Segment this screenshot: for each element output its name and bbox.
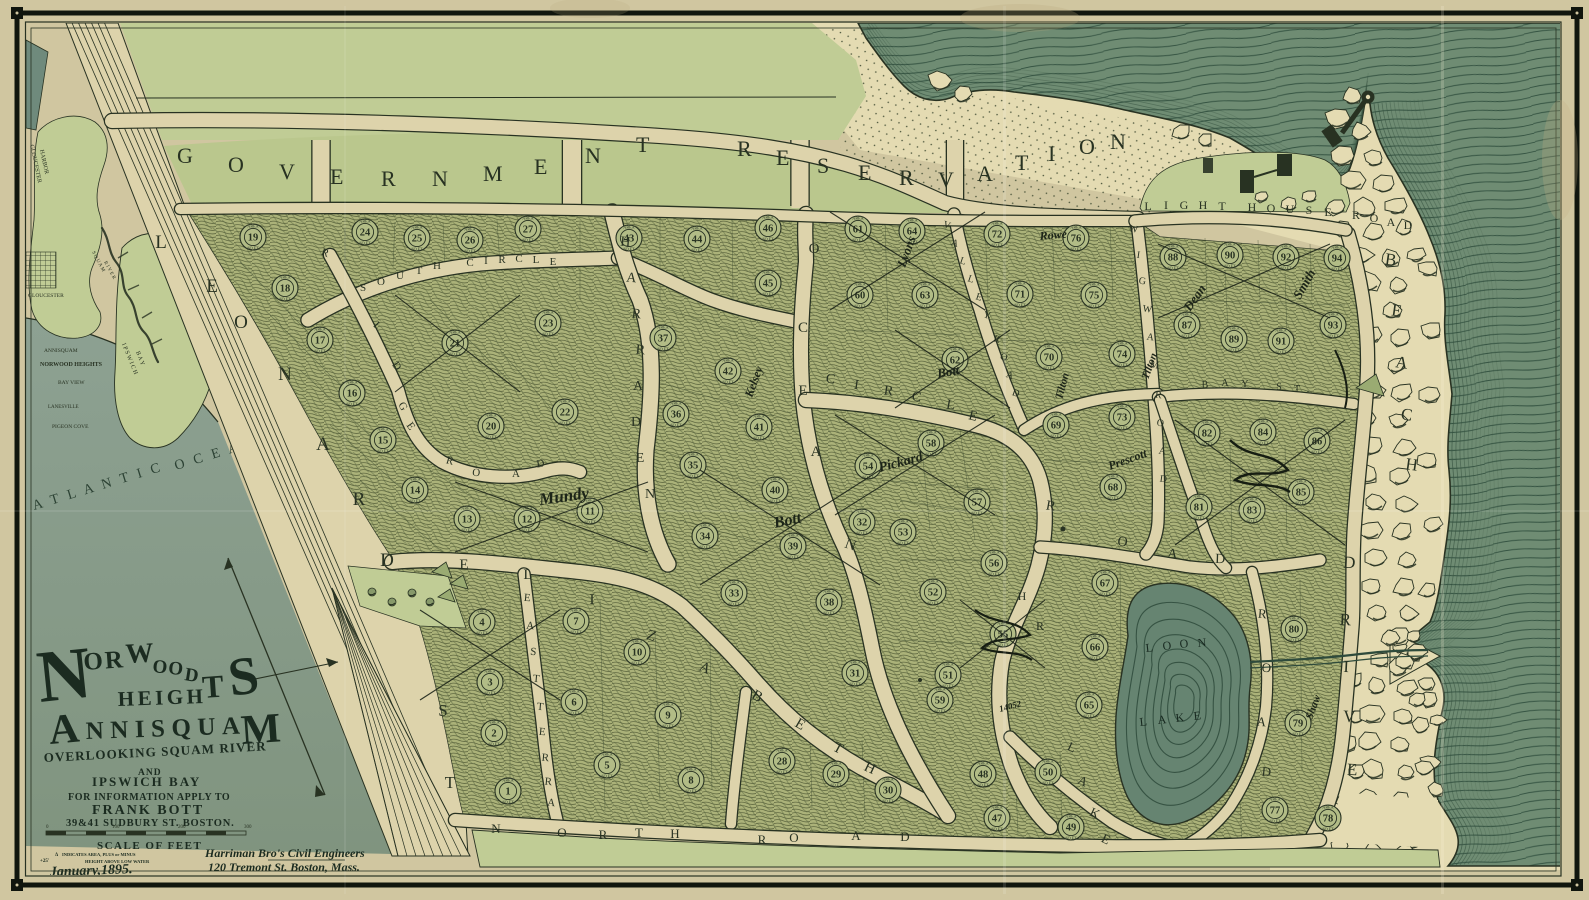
svg-text:SQ.FT: SQ.FT <box>977 783 989 788</box>
svg-text:80: 80 <box>1289 625 1300 636</box>
svg-text:SQ.FT: SQ.FT <box>1167 266 1179 271</box>
svg-text:AREA: AREA <box>601 752 612 757</box>
svg-text:AREA: AREA <box>762 215 773 220</box>
svg-text:SQ.FT: SQ.FT <box>687 474 699 479</box>
svg-text:AREA: AREA <box>542 310 553 315</box>
svg-text:SQ.FT: SQ.FT <box>411 247 423 252</box>
svg-text:T: T <box>1015 150 1029 175</box>
svg-text:AREA: AREA <box>314 327 325 332</box>
svg-text:82: 82 <box>1202 429 1213 440</box>
svg-text:O: O <box>1156 418 1165 430</box>
svg-text:49: 49 <box>1066 823 1077 834</box>
svg-text:AREA: AREA <box>662 702 673 707</box>
svg-text:AREA: AREA <box>1193 494 1204 499</box>
svg-text:N: N <box>432 166 448 191</box>
svg-text:SQ.FT: SQ.FT <box>570 630 582 635</box>
svg-text:AREA: AREA <box>906 218 917 223</box>
svg-text:SQ.FT: SQ.FT <box>1228 348 1240 353</box>
svg-text:SQ.FT: SQ.FT <box>988 572 1000 577</box>
svg-text:AREA: AREA <box>823 589 834 594</box>
svg-text:Rowe: Rowe <box>1038 227 1068 243</box>
svg-text:AREA: AREA <box>411 225 422 230</box>
svg-text:17: 17 <box>315 336 326 347</box>
svg-text:SQ.FT: SQ.FT <box>279 297 291 302</box>
svg-text:SQ.FT: SQ.FT <box>559 421 571 426</box>
svg-text:SQ.FT: SQ.FT <box>521 528 533 533</box>
svg-text:10: 10 <box>632 648 643 659</box>
svg-text:T: T <box>1294 384 1300 395</box>
svg-text:AREA: AREA <box>882 777 893 782</box>
svg-text:A: A <box>512 468 520 480</box>
svg-text:58: 58 <box>926 439 937 450</box>
svg-text:26: 26 <box>465 236 476 247</box>
svg-text:90: 90 <box>1225 251 1236 262</box>
svg-text:SQ.FT: SQ.FT <box>1295 501 1307 506</box>
svg-text:AREA: AREA <box>1331 245 1342 250</box>
svg-text:6: 6 <box>571 698 576 709</box>
svg-text:S: S <box>360 282 366 294</box>
svg-text:V: V <box>1343 707 1357 727</box>
svg-text:14: 14 <box>410 486 421 497</box>
svg-text:SQ.FT: SQ.FT <box>1327 334 1339 339</box>
svg-text:R: R <box>899 165 914 190</box>
svg-text:O: O <box>1162 638 1172 653</box>
svg-text:84: 84 <box>1258 428 1269 439</box>
svg-text:91: 91 <box>1276 337 1287 348</box>
svg-text:SQ.FT: SQ.FT <box>631 661 643 666</box>
svg-text:SQ.FT: SQ.FT <box>584 520 596 525</box>
svg-text:94: 94 <box>1332 254 1343 265</box>
svg-text:GLOUCESTER: GLOUCESTER <box>28 293 64 299</box>
svg-text:.: . <box>1307 384 1310 395</box>
svg-text:H: H <box>620 235 631 251</box>
svg-text:37: 37 <box>658 334 669 345</box>
svg-text:AREA: AREA <box>1224 242 1235 247</box>
svg-text:AREA: AREA <box>1088 282 1099 287</box>
svg-text:SQ.FT: SQ.FT <box>927 601 939 606</box>
svg-text:88: 88 <box>1168 253 1179 264</box>
svg-text:29: 29 <box>831 770 842 781</box>
svg-text:U: U <box>396 270 404 282</box>
svg-text:SQ.FT: SQ.FT <box>823 611 835 616</box>
svg-text:SQ.FT: SQ.FT <box>1043 366 1055 371</box>
svg-text:200: 200 <box>178 825 186 830</box>
svg-text:AREA: AREA <box>988 550 999 555</box>
svg-text:I: I <box>1048 141 1055 166</box>
svg-text:R: R <box>1339 610 1352 630</box>
svg-text:AREA: AREA <box>862 453 873 458</box>
svg-text:51: 51 <box>943 671 954 682</box>
svg-text:N: N <box>491 821 501 836</box>
svg-text:N: N <box>645 487 655 502</box>
svg-text:AREA: AREA <box>691 226 702 231</box>
svg-text:AREA: AREA <box>925 430 936 435</box>
svg-text:A: A <box>1221 378 1229 389</box>
svg-text:E: E <box>1347 760 1358 780</box>
svg-text:E: E <box>776 145 789 170</box>
svg-text:79: 79 <box>1293 719 1304 730</box>
svg-text:O: O <box>1370 211 1379 225</box>
svg-text:SQ.FT: SQ.FT <box>1099 592 1111 597</box>
svg-text:AREA: AREA <box>852 216 863 221</box>
svg-text:1: 1 <box>505 787 510 798</box>
svg-text:IPSWICH BAY: IPSWICH BAY <box>92 774 201 789</box>
svg-text:HEIGH: HEIGH <box>117 684 206 711</box>
svg-text:46: 46 <box>763 224 774 235</box>
svg-text:15: 15 <box>378 436 389 447</box>
svg-text:C: C <box>798 320 808 336</box>
svg-text:AREA: AREA <box>1269 797 1280 802</box>
svg-text:O: O <box>228 152 244 177</box>
svg-text:31: 31 <box>850 669 861 680</box>
svg-text:SQ.FT: SQ.FT <box>1089 656 1101 661</box>
svg-text:SQ.FT: SQ.FT <box>1246 519 1258 524</box>
svg-text:E: E <box>636 451 645 466</box>
svg-text:SQ.FT: SQ.FT <box>753 436 765 441</box>
svg-text:SQ.FT: SQ.FT <box>314 349 326 354</box>
svg-text:SQ.FT: SQ.FT <box>1331 267 1343 272</box>
svg-text:O: O <box>1267 201 1276 215</box>
svg-text:SQ.FT: SQ.FT <box>728 602 740 607</box>
svg-text:AREA: AREA <box>461 506 472 511</box>
svg-text:SQ.FT: SQ.FT <box>1193 516 1205 521</box>
svg-text:H: H <box>1248 200 1257 214</box>
svg-text:I: I <box>590 592 595 608</box>
svg-text:SCALE OF FEET: SCALE OF FEET <box>97 840 202 852</box>
svg-text:R: R <box>498 254 506 266</box>
svg-text:AREA: AREA <box>762 270 773 275</box>
svg-text:39&41 SUDBURY ST. BOSTON.: 39&41 SUDBURY ST. BOSTON. <box>66 818 235 829</box>
svg-text:SQ.FT: SQ.FT <box>882 799 894 804</box>
svg-text:SQ.FT: SQ.FT <box>699 545 711 550</box>
svg-text:AREA: AREA <box>1042 759 1053 764</box>
svg-text:AREA: AREA <box>568 689 579 694</box>
svg-text:SQ.FT: SQ.FT <box>1292 732 1304 737</box>
svg-text:SQ.FT: SQ.FT <box>461 528 473 533</box>
svg-text:300: 300 <box>244 825 252 830</box>
svg-text:65: 65 <box>1084 701 1095 712</box>
svg-text:AREA: AREA <box>830 761 841 766</box>
svg-text:SQ.FT: SQ.FT <box>776 770 788 775</box>
svg-text:AREA: AREA <box>685 767 696 772</box>
svg-text:E: E <box>206 276 218 297</box>
svg-text:59: 59 <box>935 696 946 707</box>
svg-text:AREA: AREA <box>559 399 570 404</box>
svg-text:63: 63 <box>920 291 931 302</box>
svg-text:AREA: AREA <box>359 219 370 224</box>
svg-text:AREA: AREA <box>776 748 787 753</box>
svg-text:54: 54 <box>863 462 874 473</box>
svg-text:AREA: AREA <box>1116 341 1127 346</box>
svg-text:E: E <box>858 160 871 185</box>
svg-text:SQ.FT: SQ.FT <box>476 631 488 636</box>
svg-text:O: O <box>234 312 248 333</box>
svg-text:I: I <box>484 255 488 267</box>
svg-text:AREA: AREA <box>1043 344 1054 349</box>
svg-text:AREA: AREA <box>919 282 930 287</box>
svg-text:A: A <box>811 444 822 460</box>
svg-text:42: 42 <box>723 367 734 378</box>
svg-text:C: C <box>515 253 522 265</box>
svg-text:SQ.FT: SQ.FT <box>1065 836 1077 841</box>
svg-text:S: S <box>438 701 447 720</box>
svg-text:AREA: AREA <box>1050 412 1061 417</box>
svg-text:AREA: AREA <box>722 358 733 363</box>
svg-text:66: 66 <box>1090 643 1101 654</box>
svg-text:SQ.FT: SQ.FT <box>691 248 703 253</box>
svg-text:SQ.FT: SQ.FT <box>897 541 909 546</box>
svg-text:SQ.FT: SQ.FT <box>1275 350 1287 355</box>
svg-text:L: L <box>533 254 540 266</box>
svg-text:AREA: AREA <box>1322 805 1333 810</box>
svg-text:32: 32 <box>857 518 868 529</box>
svg-text:SQ.FT: SQ.FT <box>1288 638 1300 643</box>
svg-text:R: R <box>599 827 608 842</box>
svg-text:41: 41 <box>754 423 765 434</box>
svg-text:SQ.FT: SQ.FT <box>1116 426 1128 431</box>
svg-text:SQ.FT: SQ.FT <box>1050 434 1062 439</box>
svg-text:33: 33 <box>729 589 740 600</box>
svg-text:A: A <box>547 797 556 810</box>
svg-text:38: 38 <box>824 598 835 609</box>
svg-text:AREA: AREA <box>1280 244 1291 249</box>
svg-text:SQ.FT: SQ.FT <box>685 789 697 794</box>
svg-text:44: 44 <box>692 235 703 246</box>
svg-text:INDICATES AREA, PLUS or MINUS: INDICATES AREA, PLUS or MINUS <box>62 852 136 857</box>
svg-text:A: A <box>47 705 82 754</box>
svg-text:OO: OO <box>151 656 185 680</box>
svg-text:AREA: AREA <box>1201 420 1212 425</box>
svg-text:H: H <box>1404 454 1419 475</box>
svg-text:D: D <box>1261 764 1272 780</box>
svg-text:G: G <box>177 143 193 168</box>
svg-text:AREA: AREA <box>1014 281 1025 286</box>
svg-text:AREA: AREA <box>699 523 710 528</box>
svg-text:SQ.FT: SQ.FT <box>849 682 861 687</box>
svg-text:23: 23 <box>543 319 554 330</box>
svg-text:NORWOOD HEIGHTS: NORWOOD HEIGHTS <box>40 362 103 368</box>
svg-text:SQ.FT: SQ.FT <box>488 742 500 747</box>
svg-text:SQ.FT: SQ.FT <box>1280 266 1292 271</box>
svg-text:W: W <box>125 638 155 670</box>
svg-text:AREA: AREA <box>1107 474 1118 479</box>
svg-text:AREA: AREA <box>1167 244 1178 249</box>
svg-text:N: N <box>278 364 292 385</box>
svg-text:100: 100 <box>112 825 120 830</box>
svg-text:T: T <box>536 701 544 714</box>
svg-text:AREA: AREA <box>1257 419 1268 424</box>
svg-text:SQ.FT: SQ.FT <box>830 783 842 788</box>
svg-text:16: 16 <box>347 389 358 400</box>
svg-text:60: 60 <box>855 291 866 302</box>
svg-text:A: A <box>977 161 993 186</box>
svg-text:R: R <box>1352 208 1360 222</box>
svg-text:AREA: AREA <box>1228 326 1239 331</box>
svg-text:G: G <box>1138 276 1147 288</box>
svg-text:SQ.FT: SQ.FT <box>346 402 358 407</box>
svg-text:SQ.FT: SQ.FT <box>769 499 781 504</box>
svg-text:AREA: AREA <box>1083 692 1094 697</box>
svg-text:AREA: AREA <box>1327 312 1338 317</box>
svg-text:T: T <box>416 265 423 277</box>
svg-text:SQ.FT: SQ.FT <box>762 292 774 297</box>
svg-text:68: 68 <box>1108 483 1119 494</box>
svg-text:AREA: AREA <box>502 778 513 783</box>
svg-text:SQ.FT: SQ.FT <box>854 304 866 309</box>
svg-text:T: T <box>445 773 456 792</box>
svg-text:SQ.FT: SQ.FT <box>484 691 496 696</box>
svg-text:H: H <box>670 826 679 841</box>
svg-text:SQ.FT: SQ.FT <box>377 449 389 454</box>
svg-text:4: 4 <box>479 618 485 629</box>
svg-text:SQ.FT: SQ.FT <box>409 499 421 504</box>
svg-text:H: H <box>433 260 441 272</box>
svg-text:AREA: AREA <box>942 662 953 667</box>
svg-text:AREA: AREA <box>977 761 988 766</box>
svg-text:R: R <box>1036 619 1044 633</box>
svg-text:89: 89 <box>1229 335 1240 346</box>
svg-text:L: L <box>155 232 167 253</box>
svg-text:56: 56 <box>989 559 1000 570</box>
svg-text:92: 92 <box>1281 253 1292 264</box>
svg-text:O: O <box>1261 660 1272 676</box>
svg-text:AREA: AREA <box>687 452 698 457</box>
svg-text:AREA: AREA <box>657 325 668 330</box>
svg-text:T: T <box>636 132 650 157</box>
svg-text:O: O <box>1179 636 1189 651</box>
svg-text:AREA: AREA <box>1295 479 1306 484</box>
svg-text:SQ.FT: SQ.FT <box>657 347 669 352</box>
svg-text:SQ.FT: SQ.FT <box>1042 781 1054 786</box>
svg-text:3: 3 <box>487 678 492 689</box>
svg-text:AREA: AREA <box>485 413 496 418</box>
svg-text:B: B <box>1202 380 1209 391</box>
svg-text:22: 22 <box>560 408 571 419</box>
svg-text:PIGEON COVE: PIGEON COVE <box>52 424 89 430</box>
svg-text:S: S <box>1276 382 1282 393</box>
svg-text:AREA: AREA <box>1275 328 1286 333</box>
svg-text:Harriman Bro's Civil Engineers: Harriman Bro's Civil Engineers <box>204 846 365 860</box>
svg-text:SQ.FT: SQ.FT <box>1070 247 1082 252</box>
svg-text:R: R <box>353 489 366 510</box>
svg-text:19: 19 <box>248 233 259 244</box>
svg-text:V: V <box>938 167 954 192</box>
svg-text:27: 27 <box>523 225 534 236</box>
svg-text:AREA: AREA <box>279 275 290 280</box>
svg-text:O: O <box>377 276 385 288</box>
svg-text:T: T <box>1218 199 1226 213</box>
svg-text:SQ.FT: SQ.FT <box>568 711 580 716</box>
svg-text:AREA: AREA <box>897 519 908 524</box>
svg-text:76: 76 <box>1071 234 1082 245</box>
svg-text:40: 40 <box>770 486 781 497</box>
svg-text:SQ.FT: SQ.FT <box>449 352 461 357</box>
svg-text:A: A <box>851 828 861 843</box>
svg-text:SQ.FT: SQ.FT <box>852 238 864 243</box>
svg-text:SQ.FT: SQ.FT <box>502 800 514 805</box>
svg-text:LANESVILLE: LANESVILLE <box>48 405 79 410</box>
svg-text:AREA: AREA <box>991 221 1002 226</box>
svg-text:D: D <box>536 458 546 471</box>
svg-text:AREA: AREA <box>377 427 388 432</box>
svg-text:7: 7 <box>573 617 578 628</box>
svg-text:67: 67 <box>1100 579 1111 590</box>
svg-text:74: 74 <box>1117 350 1128 361</box>
svg-text:24: 24 <box>360 228 371 239</box>
svg-text:SQ.FT: SQ.FT <box>1224 264 1236 269</box>
svg-text:AREA: AREA <box>1116 404 1127 409</box>
svg-text:AREA: AREA <box>476 609 487 614</box>
svg-text:O: O <box>809 241 820 257</box>
svg-text:SQ.FT: SQ.FT <box>991 243 1003 248</box>
svg-text:87: 87 <box>1182 321 1193 332</box>
svg-text:E: E <box>534 154 547 179</box>
svg-text:AREA: AREA <box>991 805 1002 810</box>
svg-text:D: D <box>1215 552 1226 567</box>
svg-text:AREA: AREA <box>488 720 499 725</box>
svg-text:AREA: AREA <box>934 687 945 692</box>
svg-text:SQ.FT: SQ.FT <box>1311 450 1323 455</box>
svg-text:FRANK BOTT: FRANK BOTT <box>92 803 204 818</box>
svg-text:5: 5 <box>604 761 609 772</box>
svg-text:SQ.FT: SQ.FT <box>722 380 734 385</box>
svg-text:AREA: AREA <box>631 639 642 644</box>
svg-text:AREA: AREA <box>1292 710 1303 715</box>
svg-text:2: 2 <box>491 729 496 740</box>
svg-text:D: D <box>1159 474 1168 486</box>
svg-text:D: D <box>380 550 394 571</box>
svg-text:D: D <box>1343 553 1356 573</box>
svg-text:SQ.FT: SQ.FT <box>1107 496 1119 501</box>
svg-text:39: 39 <box>788 542 799 553</box>
svg-text:+25': +25' <box>40 859 50 864</box>
svg-text:11: 11 <box>585 507 595 518</box>
svg-text:53: 53 <box>898 528 909 539</box>
svg-text:SQ.FT: SQ.FT <box>919 304 931 309</box>
svg-text:SQ.FT: SQ.FT <box>1083 714 1095 719</box>
svg-text:9: 9 <box>665 711 670 722</box>
svg-text:AREA: AREA <box>854 282 865 287</box>
svg-text:28: 28 <box>777 757 788 768</box>
svg-text:AREA: AREA <box>1089 634 1100 639</box>
svg-text:R: R <box>381 166 396 191</box>
svg-text:L: L <box>1139 714 1148 729</box>
svg-text:SQ.FT: SQ.FT <box>464 249 476 254</box>
svg-text:35: 35 <box>688 461 699 472</box>
svg-text:AREA: AREA <box>346 380 357 385</box>
svg-text:E: E <box>1324 205 1331 219</box>
svg-text:70: 70 <box>1044 353 1055 364</box>
svg-text:AREA: AREA <box>484 669 495 674</box>
svg-text:SQ.FT: SQ.FT <box>762 237 774 242</box>
svg-text:OR: OR <box>83 646 126 676</box>
svg-text:SQ.FT: SQ.FT <box>934 709 946 714</box>
svg-text:R: R <box>737 136 752 161</box>
svg-text:AREA: AREA <box>753 414 764 419</box>
svg-text:SQ.FT: SQ.FT <box>1257 441 1269 446</box>
svg-text:AREA: AREA <box>464 227 475 232</box>
svg-text:AREA: AREA <box>1288 616 1299 621</box>
svg-text:FOR INFORMATION APPLY TO: FOR INFORMATION APPLY TO <box>68 792 230 803</box>
svg-text:AREA: AREA <box>769 477 780 482</box>
svg-text:AREA: AREA <box>449 330 460 335</box>
svg-text:S: S <box>530 646 537 658</box>
svg-text:O: O <box>1079 134 1095 159</box>
svg-text:N: N <box>1197 635 1207 650</box>
svg-text:AREA: AREA <box>1070 225 1081 230</box>
svg-text:48: 48 <box>978 770 989 781</box>
svg-text:M: M <box>483 161 503 186</box>
